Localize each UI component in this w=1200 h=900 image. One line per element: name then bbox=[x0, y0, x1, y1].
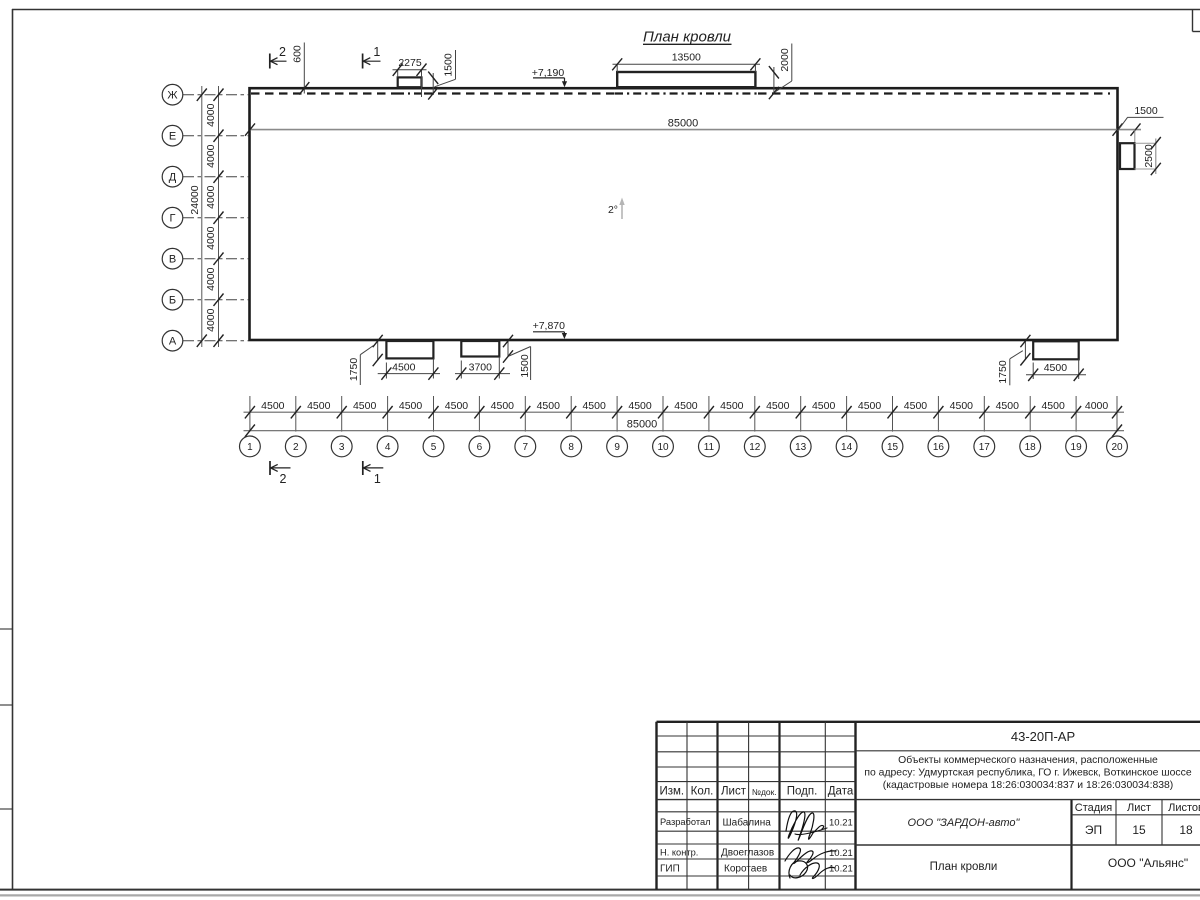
svg-text:Стадия: Стадия bbox=[1075, 802, 1113, 814]
svg-text:8: 8 bbox=[568, 442, 574, 453]
svg-text:4500: 4500 bbox=[261, 400, 285, 412]
svg-text:14: 14 bbox=[841, 442, 853, 453]
svg-text:Лист: Лист bbox=[721, 786, 747, 798]
svg-text:10: 10 bbox=[657, 442, 669, 453]
svg-text:19: 19 bbox=[1071, 442, 1083, 453]
svg-text:1500: 1500 bbox=[519, 354, 531, 378]
svg-text:Разработал: Разработал bbox=[660, 817, 711, 827]
svg-text:Е: Е bbox=[169, 131, 176, 143]
svg-text:2500: 2500 bbox=[1143, 144, 1155, 168]
svg-text:4000: 4000 bbox=[205, 185, 217, 209]
svg-text:4500: 4500 bbox=[399, 400, 423, 412]
svg-text:4500: 4500 bbox=[904, 400, 928, 412]
svg-text:План кровли: План кровли bbox=[930, 861, 998, 873]
svg-text:15: 15 bbox=[887, 442, 899, 453]
svg-text:4000: 4000 bbox=[1085, 400, 1109, 412]
svg-text:Ж: Ж bbox=[167, 90, 177, 102]
svg-text:24000: 24000 bbox=[189, 185, 201, 214]
svg-text:43-20П-АР: 43-20П-АР bbox=[1011, 729, 1075, 744]
svg-text:4500: 4500 bbox=[392, 361, 416, 373]
svg-text:4500: 4500 bbox=[353, 400, 377, 412]
svg-text:Н. контр.: Н. контр. bbox=[660, 847, 698, 857]
svg-text:2: 2 bbox=[280, 472, 287, 486]
svg-text:9: 9 bbox=[614, 442, 620, 453]
svg-text:20: 20 bbox=[1111, 442, 1123, 453]
svg-text:1750: 1750 bbox=[348, 358, 360, 382]
svg-text:4500: 4500 bbox=[1041, 400, 1065, 412]
svg-text:18: 18 bbox=[1179, 823, 1193, 837]
svg-text:Шабалина: Шабалина bbox=[723, 816, 772, 828]
svg-text:1750: 1750 bbox=[997, 360, 1009, 384]
svg-text:600: 600 bbox=[292, 45, 304, 63]
svg-text:Г: Г bbox=[170, 213, 176, 225]
svg-text:ЭП: ЭП bbox=[1085, 823, 1102, 837]
svg-text:4500: 4500 bbox=[858, 400, 882, 412]
svg-text:2000: 2000 bbox=[779, 48, 791, 72]
svg-text:ГИП: ГИП bbox=[660, 863, 680, 874]
svg-text:4500: 4500 bbox=[491, 400, 515, 412]
svg-text:18: 18 bbox=[1025, 442, 1037, 453]
svg-text:15: 15 bbox=[1132, 823, 1146, 837]
svg-text:(кадастровые номера 18:26:0300: (кадастровые номера 18:26:030034:837 и 1… bbox=[883, 780, 1174, 791]
svg-text:13: 13 bbox=[795, 442, 807, 453]
svg-text:ООО "Альянс": ООО "Альянс" bbox=[1108, 856, 1188, 870]
svg-text:3: 3 bbox=[339, 442, 345, 453]
svg-text:17: 17 bbox=[979, 442, 991, 453]
svg-text:10.21: 10.21 bbox=[829, 864, 853, 875]
svg-text:В: В bbox=[169, 254, 176, 266]
svg-text:по адресу: Удмуртская республи: по адресу: Удмуртская республика, ГО г. … bbox=[864, 766, 1191, 778]
svg-text:2: 2 bbox=[279, 45, 286, 59]
svg-text:Подп.: Подп. bbox=[787, 786, 818, 798]
svg-text:4000: 4000 bbox=[205, 308, 217, 332]
svg-text:7: 7 bbox=[523, 442, 529, 453]
svg-text:А: А bbox=[169, 336, 177, 348]
svg-text:4500: 4500 bbox=[307, 400, 331, 412]
svg-text:4500: 4500 bbox=[720, 400, 744, 412]
svg-text:4500: 4500 bbox=[537, 400, 561, 412]
svg-text:План кровли: План кровли bbox=[643, 29, 732, 46]
svg-text:4000: 4000 bbox=[205, 226, 217, 250]
svg-text:4500: 4500 bbox=[1044, 362, 1068, 374]
svg-text:4500: 4500 bbox=[996, 400, 1020, 412]
svg-text:2275: 2275 bbox=[398, 57, 422, 69]
svg-text:2°: 2° bbox=[608, 204, 618, 216]
svg-text:Изм.: Изм. bbox=[659, 786, 684, 798]
svg-text:10.21: 10.21 bbox=[829, 817, 853, 828]
svg-text:4: 4 bbox=[385, 442, 391, 453]
svg-text:Дата: Дата bbox=[828, 786, 854, 798]
svg-text:4000: 4000 bbox=[205, 103, 217, 127]
svg-text:ООО "ЗАРДОН-авто": ООО "ЗАРДОН-авто" bbox=[908, 817, 1021, 829]
svg-text:12: 12 bbox=[749, 442, 761, 453]
svg-text:85000: 85000 bbox=[668, 117, 699, 129]
svg-text:1: 1 bbox=[247, 442, 253, 453]
svg-text:4500: 4500 bbox=[812, 400, 836, 412]
svg-text:4500: 4500 bbox=[766, 400, 790, 412]
svg-text:11: 11 bbox=[704, 442, 715, 453]
svg-text:4000: 4000 bbox=[205, 144, 217, 168]
svg-text:Листов: Листов bbox=[1168, 802, 1200, 814]
svg-text:1500: 1500 bbox=[443, 53, 455, 77]
svg-text:Б: Б bbox=[169, 295, 176, 307]
svg-text:4500: 4500 bbox=[950, 400, 974, 412]
svg-text:Кол.: Кол. bbox=[691, 786, 714, 798]
svg-text:+7,870: +7,870 bbox=[533, 320, 566, 332]
svg-text:1500: 1500 bbox=[1134, 105, 1158, 117]
svg-text:6: 6 bbox=[477, 442, 483, 453]
svg-text:5: 5 bbox=[431, 442, 437, 453]
svg-text:Лист: Лист bbox=[1127, 802, 1151, 814]
svg-text:Объекты коммерческого назначен: Объекты коммерческого назначения, распол… bbox=[898, 754, 1158, 766]
svg-text:85000: 85000 bbox=[627, 419, 658, 431]
svg-text:№док.: №док. bbox=[752, 787, 777, 797]
svg-text:16: 16 bbox=[933, 442, 945, 453]
svg-text:Д: Д bbox=[169, 172, 177, 184]
svg-text:1: 1 bbox=[373, 45, 380, 59]
svg-text:13500: 13500 bbox=[672, 52, 701, 64]
svg-text:1: 1 bbox=[374, 472, 381, 486]
svg-text:3700: 3700 bbox=[469, 361, 493, 373]
svg-text:4500: 4500 bbox=[628, 400, 652, 412]
svg-text:4500: 4500 bbox=[674, 400, 698, 412]
svg-text:Коротаев: Коротаев bbox=[724, 863, 767, 874]
svg-text:2: 2 bbox=[293, 442, 299, 453]
svg-text:4500: 4500 bbox=[445, 400, 469, 412]
svg-text:Двоеглазов: Двоеглазов bbox=[721, 848, 774, 859]
svg-text:4000: 4000 bbox=[205, 267, 217, 291]
svg-text:10.21: 10.21 bbox=[829, 848, 853, 859]
svg-text:4500: 4500 bbox=[582, 400, 606, 412]
